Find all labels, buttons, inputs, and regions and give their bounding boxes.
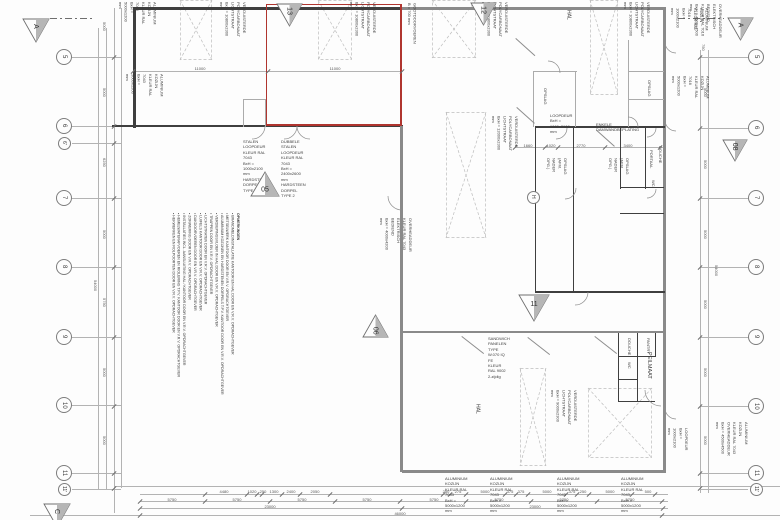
wall-segment (133, 7, 136, 128)
grid-bubble-11: 11 (748, 465, 764, 481)
svg-text:05: 05 (261, 186, 269, 193)
annotation-label-rotated: PEILMAAT (644, 352, 652, 379)
door-swing-arc (297, 126, 310, 139)
wall-segment (535, 126, 536, 293)
annotation-label: ALUMINIUM KOZIJN KLEUR RAL 7043 BxH = 50… (445, 476, 467, 514)
door-swing-arc (647, 189, 656, 198)
door-swing-arc (645, 390, 661, 406)
door-swing-arc (647, 128, 656, 137)
annotation-label-rotated: OVERHEADDEUR KLEUR RAL 7043 ELEKTRISCH B… (378, 218, 413, 252)
annotation-label-rotated: GOOTDOORVOEREN B = 700 mm (406, 3, 418, 44)
grid-bubble-7: 7 (748, 190, 764, 206)
dimension-label: 2050 (311, 489, 320, 494)
dimension-label: 5000 (703, 436, 708, 445)
dimension-label: 5000 (703, 230, 708, 239)
door-swing-arc (252, 126, 265, 139)
brace-stroke (515, 38, 535, 56)
dimension-label: 1020 (547, 143, 556, 148)
grid-line (140, 501, 668, 502)
grid-bubble-10: 10 (56, 397, 72, 413)
section-marker-08: 08 (722, 139, 748, 162)
annotation-label-rotated: ALUMINIUM KOZIJN KLEUR RAL 7016 BxH = 10… (669, 8, 710, 30)
wall-segment (243, 99, 244, 127)
grid-bubble-label: 9 (61, 335, 67, 338)
section-marker-12: 12 (470, 2, 497, 26)
grid-bubble-6: 6 (56, 118, 72, 134)
dimension-label: 375 (518, 489, 525, 494)
annotation-label-rotated: VERDUISTERDE POLYCARBONAAT LICHTSTRAAT B… (622, 2, 651, 37)
svg-text:11: 11 (530, 301, 537, 308)
grid-bubble-label: H (530, 195, 536, 199)
grid-bubble-6p: 6' (58, 137, 71, 150)
dimension-label: 5000 (543, 489, 552, 494)
wall-segment (618, 379, 637, 380)
skylight-hatch (446, 112, 486, 238)
door-swing-arc (565, 188, 576, 199)
grid-bubble-label: 7 (61, 196, 67, 199)
annotation-label-rotated: HAL (473, 404, 480, 414)
grid-line (98, 28, 99, 490)
annotation-label-rotated: HAL (564, 10, 571, 20)
dimension-label: 5000 (703, 300, 708, 309)
annotation-label-rotated: DOUCHE (657, 146, 663, 163)
wall-segment (575, 71, 576, 127)
dimension-label: 1300 (270, 489, 279, 494)
floor-plan-canvas: 4480102025013002400205025027550003753755… (0, 0, 780, 520)
dimension-label: 6250 (102, 158, 107, 167)
dimension-label: 54000 (93, 280, 98, 291)
dimension-label: 250 (580, 489, 587, 494)
wall-segment (655, 333, 656, 357)
annotation-label-rotated: OPSLAG (AFM. NADER OPG.) (545, 158, 568, 174)
wall-segment (402, 470, 665, 473)
wall-segment (628, 71, 664, 72)
grid-bubble-label: 5 (753, 55, 759, 58)
grid-bubble-label: 11' (61, 486, 67, 492)
grid-line (140, 508, 668, 509)
grid-bubble-label: 11 (753, 470, 759, 476)
section-marker-11: 11 (518, 294, 550, 322)
skylight-hatch (590, 0, 618, 95)
dimension-label: 11000 (330, 66, 341, 71)
dimension-label: 5000 (102, 368, 107, 377)
grid-bubble-label: 6 (61, 124, 67, 127)
annotation-label-rotated: ALUMINIUM KOZIJN KLEUR RAL 7043 OVERHEAD… (714, 422, 749, 456)
grid-bubble-label: 11 (61, 470, 67, 476)
dimension-label: 5000 (703, 368, 708, 377)
annotation-label-rotated: ALUMINIUM KOZIJN KLEUR RAL 7016 BxH = 50… (670, 76, 711, 98)
dimension-label: 46000 (394, 511, 405, 516)
dimension-label: 5000 (102, 436, 107, 445)
door-swing-arc (388, 196, 402, 210)
annotation-label-rotated: LOOPDEUR BxH = 1000x2100 mm (666, 428, 689, 450)
door-swing-arc (548, 61, 560, 73)
wall-segment (620, 213, 664, 214)
wall-segment (645, 126, 646, 189)
dimension-label: 5750 (363, 497, 372, 502)
grid-line (121, 8, 122, 488)
dimension-label: 54000 (714, 265, 719, 276)
dimension-label: 5750 (168, 497, 177, 502)
grid-bubble-10: 10 (748, 398, 764, 414)
wall-segment (663, 7, 666, 473)
annotation-label: ALUMINIUM KOZIJN KLEUR RAL 7043 BxH = 50… (490, 476, 512, 514)
grid-line (515, 147, 663, 148)
grid-leader (700, 128, 748, 129)
svg-text:13: 13 (286, 7, 293, 15)
annotation-label: SANDWICH PANELEN TYPE W.070 IQ FE KLEUR … (488, 336, 510, 379)
dimension-label: 2400 (287, 489, 296, 494)
grid-bubble-9: 9 (56, 329, 72, 345)
grid-line (700, 50, 701, 493)
dimension-label: 5750 (102, 298, 107, 307)
wall-segment (628, 40, 629, 127)
dimension-label: 2770 (577, 143, 586, 148)
door-swing-arc (665, 42, 676, 53)
annotation-label: ALUMINIUM KOZIJN KLEUR RAL 7043 BxH = 50… (621, 476, 643, 514)
notes-header: OPMERKINGEN (236, 213, 240, 240)
grid-leader (700, 489, 748, 490)
annotation-label: LOOPDEUR BxH = 1000x2100 mm (550, 113, 572, 135)
dimension-label: 3400 (624, 143, 633, 148)
grid-leader (700, 267, 748, 268)
annotation-label-rotated: PANTRY (645, 338, 651, 354)
grid-bubble-label: 10 (753, 403, 759, 410)
grid-bubble-label: 5 (61, 55, 67, 58)
grid-bubble-label: 6 (753, 126, 759, 129)
wall-segment (402, 331, 664, 333)
dimension-label: 5000 (102, 230, 107, 239)
dimension-label: 23000 (529, 504, 540, 509)
grid-bubble-7: 7 (56, 190, 72, 206)
centerline-dashdot (50, 18, 95, 19)
grid-bubble-label: 8 (61, 265, 67, 268)
grid-leader (700, 57, 748, 58)
wall-segment (618, 333, 619, 402)
wall-segment (243, 99, 267, 100)
grid-leader (700, 198, 748, 199)
grid-line (114, 8, 115, 513)
dimension-label: 4480 (220, 489, 229, 494)
section-marker-05: 05 (250, 171, 280, 197)
grid-line (708, 50, 709, 493)
skylight-hatch (588, 388, 652, 458)
dimension-label: 5750 (430, 497, 439, 502)
annotation-label-rotated: PORTAAL (648, 150, 654, 168)
grid-bubble-8: 8 (56, 259, 72, 275)
grid-bubble-H: H (527, 191, 540, 204)
brace-stroke (528, 337, 551, 355)
wall-segment (620, 187, 664, 188)
revision-line-red (266, 4, 267, 126)
grid-bubble-11p: 11' (750, 483, 763, 496)
grid-bubble-label: 8 (753, 265, 759, 268)
grid-bubble-8: 8 (748, 259, 764, 275)
wall-segment (533, 71, 534, 127)
grid-bubble-11: 11 (56, 465, 72, 481)
door-swing-arc (284, 126, 297, 139)
svg-text:08: 08 (731, 143, 738, 151)
annotation-label-rotated: ALUMINIUM KOZIJN KLEUR RAL 7043 BxH = 50… (117, 2, 158, 24)
section-marker-06: 06 (362, 314, 389, 338)
dimension-label: 750 (701, 44, 706, 51)
dimension-label: 5000 (606, 489, 615, 494)
section-marker-C: C (43, 503, 71, 520)
door-swing-arc (575, 292, 588, 305)
svg-text:12: 12 (480, 6, 487, 14)
dimension-label: 5750 (233, 497, 242, 502)
wall-segment (400, 126, 403, 472)
wall-segment (637, 333, 638, 402)
dimension-label: 500 (645, 489, 652, 494)
skylight-hatch (520, 368, 546, 466)
annotation-label: ENKELE DAMWANDBEPLATING (596, 122, 639, 133)
door-swing-arc (665, 408, 676, 419)
grid-bubble-6: 6 (748, 120, 764, 136)
svg-text:C: C (53, 509, 60, 514)
dimension-label: 1660 (524, 143, 533, 148)
dimension-label: 1020 (248, 489, 257, 494)
dimension-label: 5000 (102, 88, 107, 97)
section-marker-A: A (22, 18, 50, 43)
dimension-label: 5000 (481, 489, 490, 494)
section-marker-13: 13 (276, 3, 303, 27)
annotation-label: ALUMINIUM KOZIJN KLEUR RAL 7043 BxH = 50… (557, 476, 579, 514)
annotation-label-rotated: VERDUISTERDE POLYCARBONAAT LICHTSTRAAT B… (549, 390, 578, 425)
grid-bubble-11p: 11' (58, 483, 71, 496)
notes-block: OPMERKINGEN • BRANDMELDINSTALLATIE KANTO… (152, 213, 240, 443)
brace-stroke (595, 336, 618, 354)
dimension-label: 11000 (195, 66, 206, 71)
grid-bubble-5: 5 (56, 49, 72, 65)
annotation-label-rotated: VERDUISTERDE POLYCARBONAAT LICHTSTRAAT B… (490, 116, 519, 151)
annotation-label-rotated: OPSLAG (646, 80, 652, 96)
svg-text:06: 06 (372, 327, 379, 335)
svg-text:A: A (737, 23, 744, 28)
wall-segment (628, 99, 664, 100)
section-marker-A: A (727, 17, 754, 41)
grid-bubble-label: 9 (753, 335, 759, 338)
revision-line-red (400, 4, 402, 126)
grid-bubble-5: 5 (748, 49, 764, 65)
wall-segment (535, 291, 665, 293)
annotation-label-rotated: VERDUISTERDE POLYCARBONAAT LICHTSTRAAT B… (348, 2, 377, 37)
grid-line (106, 28, 107, 490)
grid-leader (700, 406, 748, 407)
grid-bubble-9: 9 (748, 329, 764, 345)
dimension-label: 23000 (264, 504, 275, 509)
svg-text:A: A (32, 24, 39, 29)
annotation-label-rotated: DOUCHE (626, 338, 632, 355)
annotation-label-rotated: OPSLAG (AFM. NADER OPG.) (607, 158, 630, 174)
annotation-label-rotated: WC (626, 362, 632, 369)
dimension-label: 250 (260, 489, 267, 494)
grid-leader (700, 473, 748, 474)
annotation-label-rotated: WC (650, 180, 656, 187)
grid-bubble-label: 7 (753, 196, 759, 199)
door-swing-arc (665, 120, 676, 131)
grid-bubble-label: 10 (61, 402, 67, 409)
grid-leader (700, 337, 748, 338)
annotation-label-rotated: ALUMINIUM KOZIJN KLEUR RAL 7043 BxH = 50… (124, 74, 165, 96)
annotation-label-rotated: OPSLAG (542, 88, 548, 104)
brace-stroke (462, 336, 485, 354)
dimension-label: 5750 (298, 497, 307, 502)
grid-bubble-label: 11' (753, 486, 759, 492)
annotation-label: DUBBELE STALEN LOOPDEUR KLEUR RAL 7043 B… (281, 139, 306, 198)
dimension-label: 5000 (703, 160, 708, 169)
wall-segment (573, 126, 574, 293)
grid-bubble-label: 6' (61, 141, 67, 145)
notes-body: • BRANDMELDINSTALLATIE KANTOOR EN HAL DO… (171, 213, 234, 395)
dimension-label: 5000 (102, 22, 107, 31)
annotation-label-rotated: VERDUISTERDE POLYCARBONAAT LICHTSTRAAT B… (218, 2, 247, 37)
